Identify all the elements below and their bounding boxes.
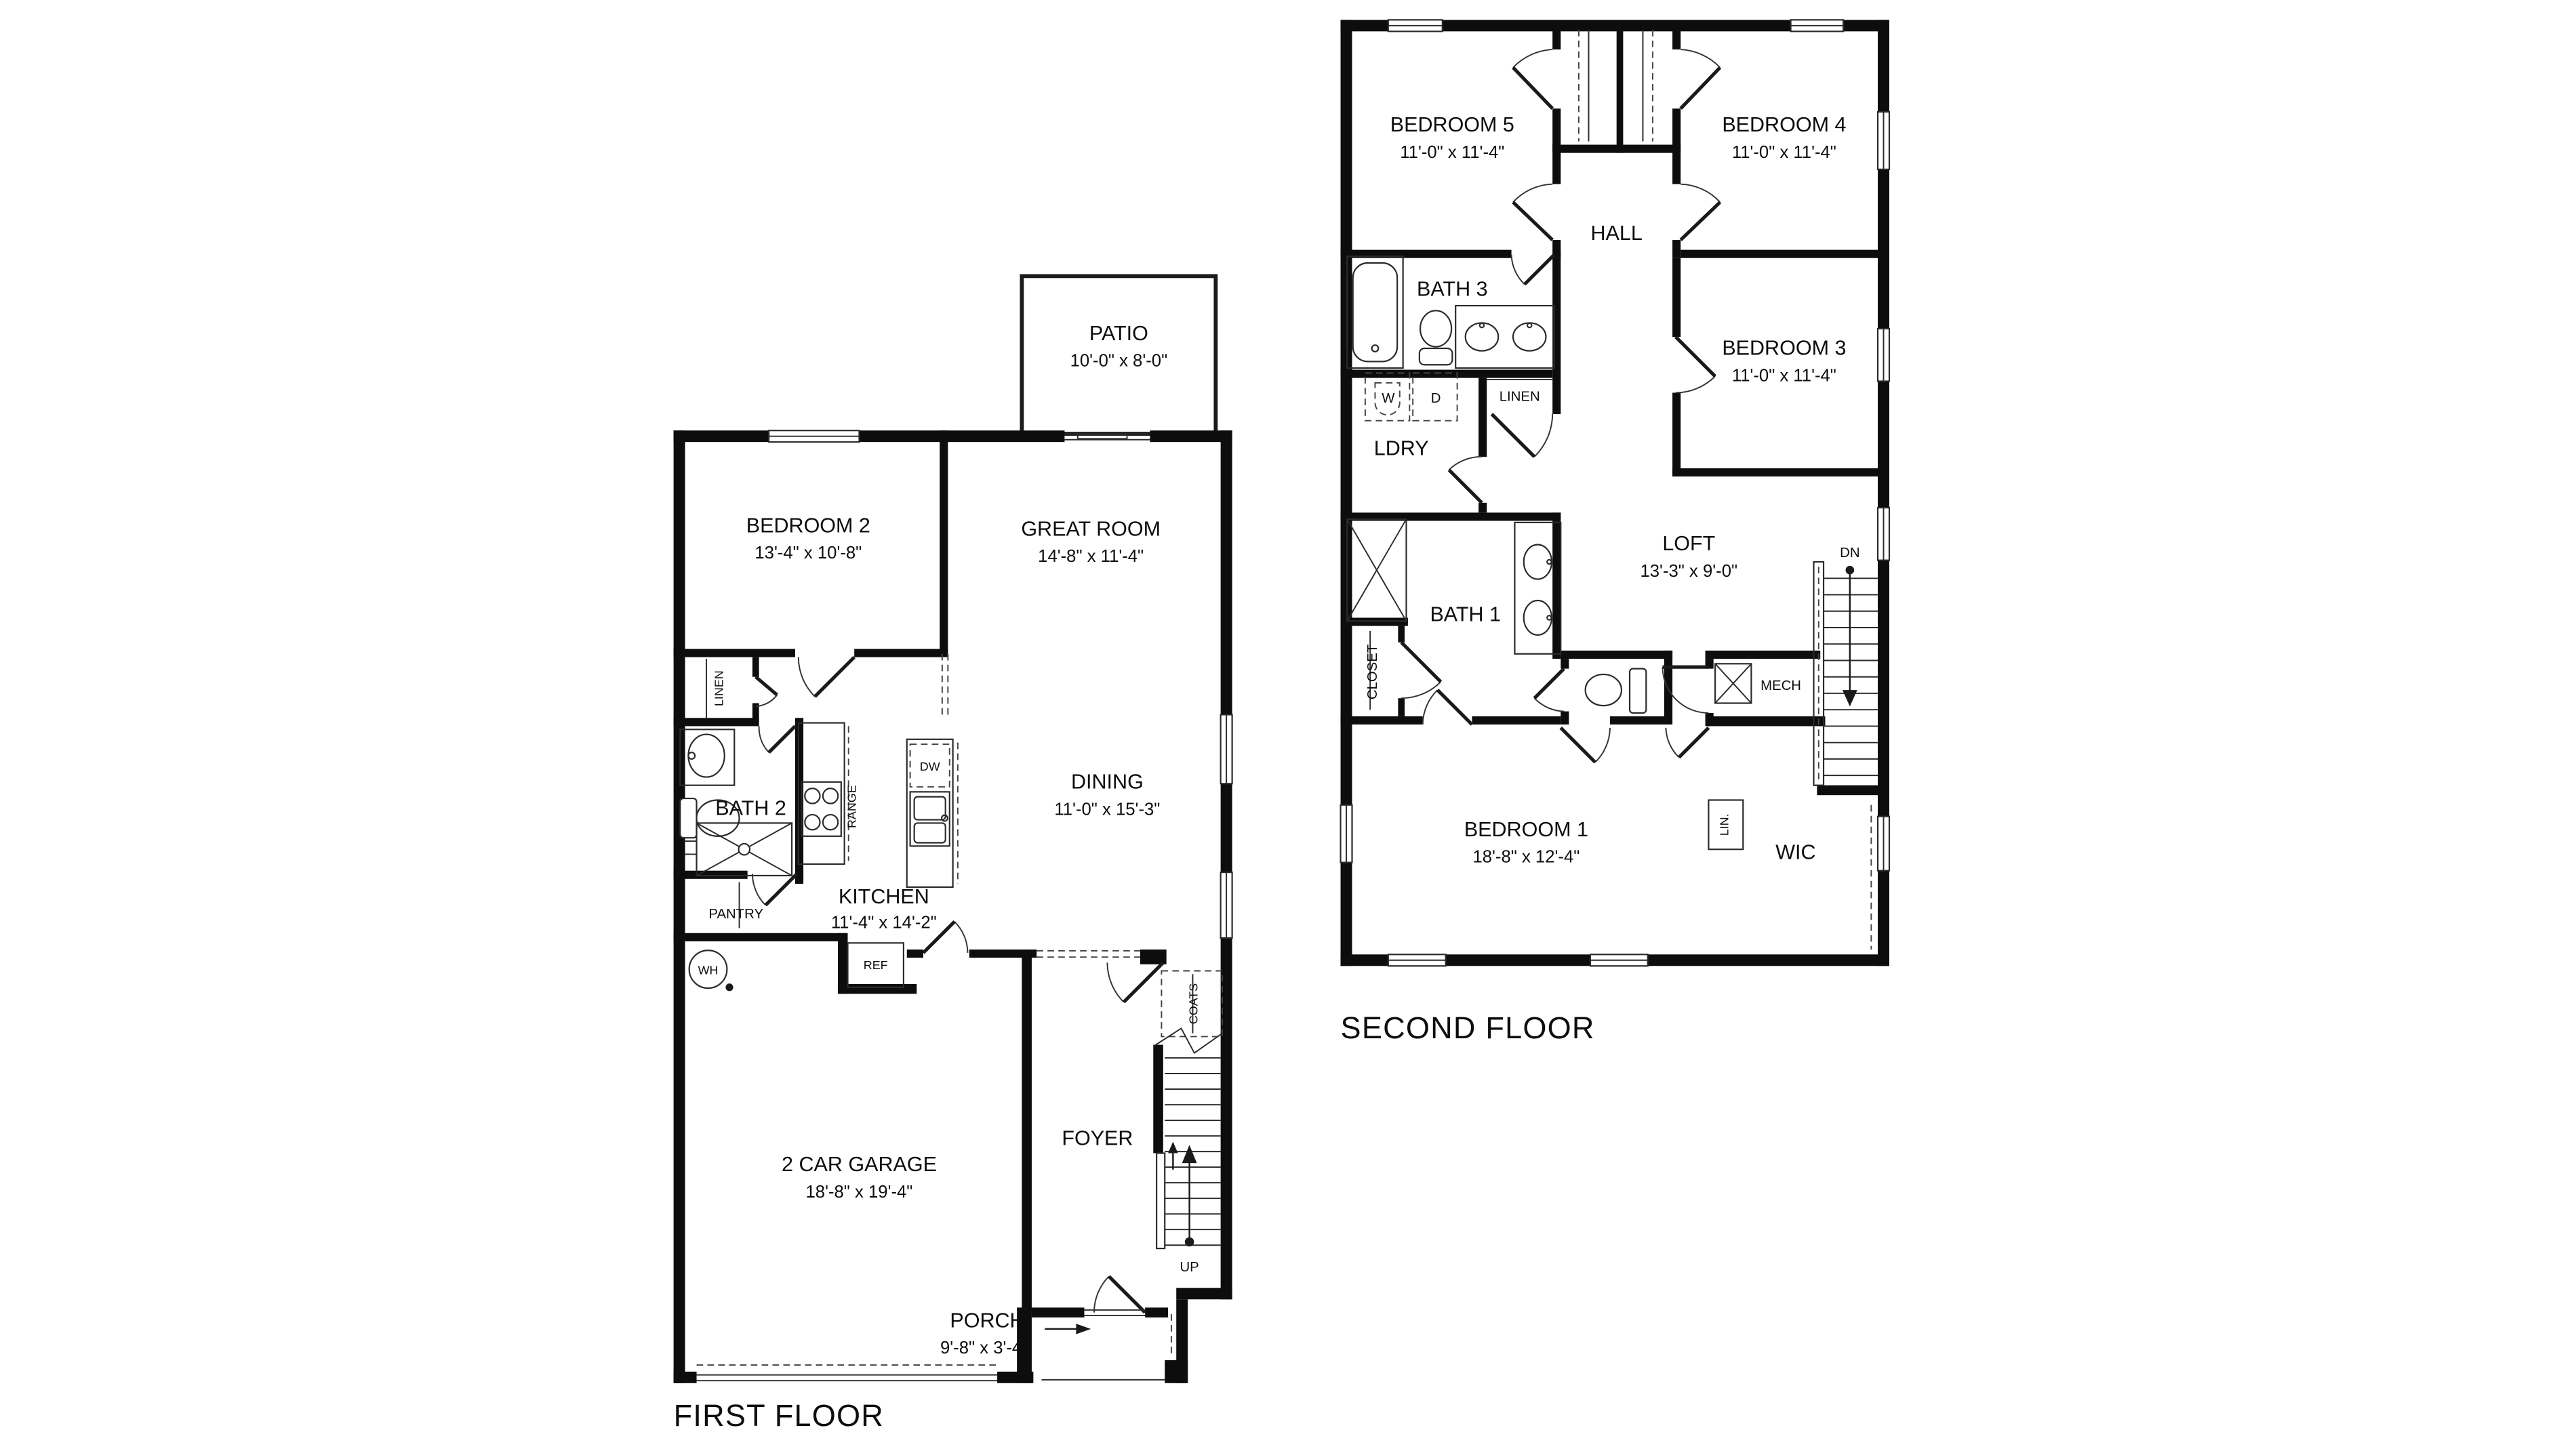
dn-arrow	[1843, 566, 1857, 706]
up-arrow	[1168, 1142, 1196, 1247]
washer-label: W	[1382, 391, 1395, 406]
floor-plan-canvas: PATIO 10'-0" x 8'-0"	[0, 0, 2576, 1449]
toilet-icon	[1586, 669, 1647, 713]
room-dims: 11'-4" x 14'-2"	[831, 914, 937, 933]
shower-icon	[685, 823, 792, 876]
pantry-label: PANTRY	[708, 907, 763, 922]
window	[1878, 817, 1889, 871]
pantry-door	[752, 874, 797, 905]
window	[1221, 872, 1232, 938]
bedroom1-door	[1561, 728, 1610, 762]
window	[1791, 20, 1844, 31]
room-dims: 11'-0" x 11'-4"	[1732, 143, 1836, 162]
room-label: HALL	[1591, 222, 1643, 245]
bedroom3-door	[1676, 337, 1715, 392]
room-label: BATH 1	[1430, 603, 1501, 626]
tub-icon	[1347, 256, 1403, 368]
mech-label: MECH	[1760, 678, 1801, 693]
window	[1590, 954, 1648, 966]
window	[1388, 954, 1446, 966]
room-dims: 14'-8" x 11'-4"	[1038, 547, 1144, 566]
refrigerator-label: REF	[864, 958, 888, 972]
window	[1388, 20, 1443, 31]
room-label: DINING	[1071, 771, 1144, 794]
room-label: BATH 3	[1417, 277, 1488, 300]
first-floor-title: FIRST FLOOR	[674, 1398, 884, 1433]
stair-rail	[1156, 1154, 1165, 1249]
room-label: LOFT	[1662, 532, 1715, 555]
room-dims: 9'-8" x 3'-4"	[940, 1339, 1028, 1358]
window	[1878, 329, 1889, 382]
bath3-fixtures	[1347, 256, 1554, 368]
closet-label: LINEN	[712, 670, 725, 706]
second-floor-plan: BEDROOM 5 11'-0" x 11'-4" BEDROOM 4 11'-…	[1341, 20, 1889, 1045]
linen2-door	[1492, 414, 1553, 457]
shower-icon	[1347, 519, 1406, 621]
window	[1341, 805, 1352, 863]
linen-door	[756, 677, 778, 707]
kitchen-sink-icon	[910, 792, 950, 846]
room-label: BATH 2	[715, 796, 786, 819]
bath3-door	[1512, 255, 1554, 285]
room-label: BEDROOM 4	[1722, 113, 1846, 136]
water-closet-door	[1535, 669, 1565, 712]
second-floor-stairs	[1814, 562, 1878, 785]
bedroom5-closet-door	[1513, 49, 1552, 108]
toilet-icon	[1420, 310, 1452, 365]
front-door	[1084, 1276, 1145, 1315]
sink-icon	[680, 729, 734, 785]
room-dims: 13'-3" x 9'-0"	[1641, 562, 1738, 581]
window	[1221, 714, 1232, 783]
room-dims: 13'-4" x 10'-8"	[754, 544, 862, 563]
laundry-fixtures	[1365, 373, 1457, 420]
closet-label: CLOSET	[1365, 645, 1380, 699]
porch-elements	[1041, 1314, 1171, 1380]
bath2-door	[759, 726, 795, 752]
closet-rods	[1370, 30, 1871, 950]
room-dims: 11'-0" x 11'-4"	[1732, 366, 1836, 385]
room-label: BEDROOM 5	[1390, 113, 1514, 136]
room-dims: 10'-0" x 8'-0"	[1070, 352, 1168, 371]
first-floor-plan: PATIO 10'-0" x 8'-0"	[674, 276, 1232, 1432]
window	[1878, 112, 1889, 169]
room-label: KITCHEN	[839, 885, 929, 908]
room-patio: PATIO 10'-0" x 8'-0"	[1022, 276, 1215, 434]
wic-door	[1666, 728, 1708, 758]
dishwasher-label: DW	[920, 760, 940, 773]
room-dims: 11'-0" x 15'-3"	[1054, 800, 1160, 819]
range-label: RANGE	[845, 785, 859, 828]
second-floor-title: SECOND FLOOR	[1341, 1011, 1595, 1045]
dryer-label: D	[1431, 391, 1441, 406]
mech-fixtures	[1715, 664, 1751, 703]
window	[1878, 508, 1889, 560]
foyer-closet-door	[1107, 962, 1163, 1002]
room-label: GREAT ROOM	[1021, 517, 1161, 540]
range-icon	[802, 782, 841, 836]
room-label: PATIO	[1089, 322, 1148, 345]
bedroom4-closet-door	[1681, 49, 1720, 108]
room-label: BEDROOM 3	[1722, 337, 1846, 360]
room-dims: 18'-8" x 19'-4"	[806, 1183, 913, 1202]
bedroom4-door	[1681, 184, 1720, 240]
room-dims: 18'-8" x 12'-4"	[1472, 848, 1579, 867]
up-label: UP	[1180, 1260, 1199, 1275]
lin-label: LIN.	[1717, 813, 1731, 836]
bath1-closet-door	[1401, 642, 1441, 698]
room-label: BEDROOM 2	[746, 514, 870, 537]
first-floor-windows	[769, 430, 1232, 938]
room-label: BEDROOM 1	[1464, 818, 1588, 841]
bedroom5-door	[1513, 184, 1552, 240]
room-label: FOYER	[1062, 1126, 1133, 1149]
room-dims: 11'-0" x 11'-4"	[1400, 143, 1504, 162]
room-label: WIC	[1775, 841, 1815, 864]
dn-label: DN	[1840, 546, 1859, 560]
laundry-door	[1449, 457, 1482, 503]
water-heater-label: WH	[698, 963, 719, 977]
coats-label: COATS	[1187, 983, 1201, 1024]
room-label: 2 CAR GARAGE	[782, 1153, 937, 1176]
bedroom2-door	[799, 657, 854, 697]
window	[769, 430, 859, 442]
bath1-door	[1423, 690, 1472, 724]
double-vanity-icon	[1455, 306, 1554, 368]
linen-label: LINEN	[1500, 390, 1540, 405]
room-label: PORCH	[950, 1309, 1024, 1332]
porch-arrow	[1045, 1324, 1091, 1334]
room-label: LDRY	[1374, 437, 1429, 460]
